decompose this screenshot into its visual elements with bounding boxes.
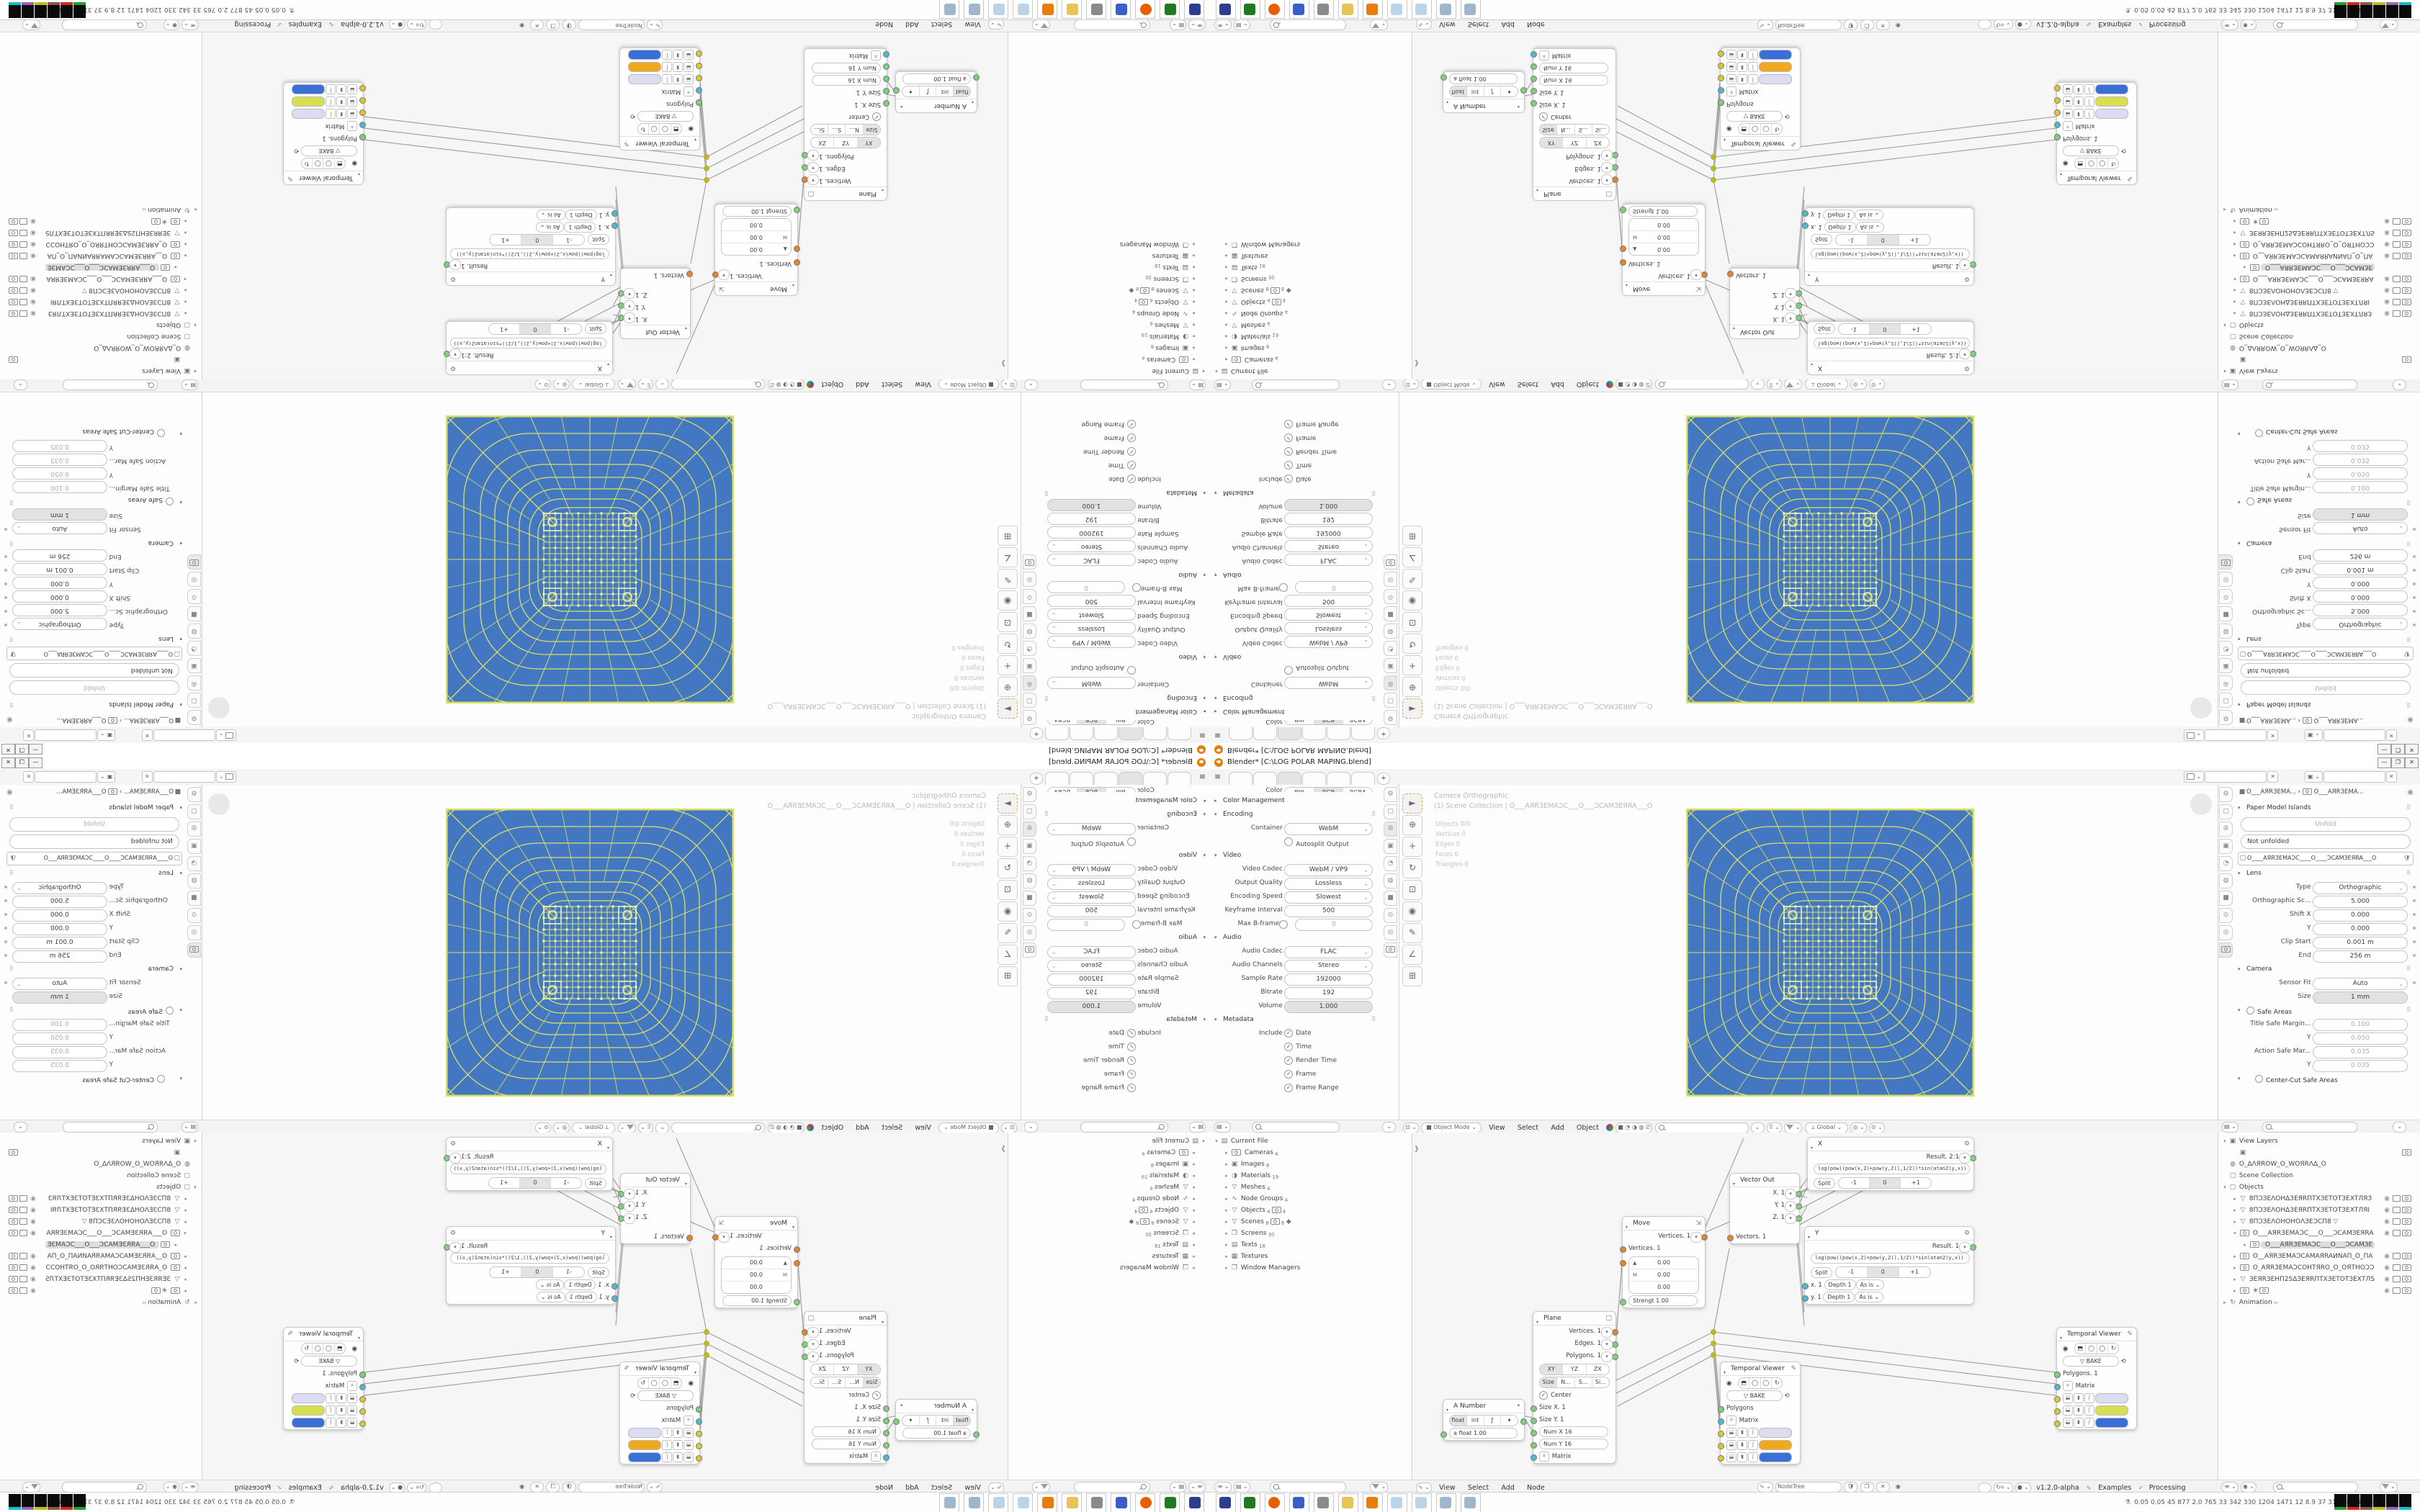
filter-funnel[interactable]: ⌄ (22, 19, 40, 30)
layer-icon-c[interactable]: ʃ (662, 1452, 672, 1462)
socket-orange[interactable] (1620, 1246, 1626, 1253)
scene-selector[interactable]: ⌄ ✕ (2184, 771, 2279, 783)
bake-button[interactable]: ▽ BAKE (301, 145, 357, 156)
layers-row-2[interactable]: ◍ O_ΔΛЯROW_O_WOЯRΛΔ_O (3, 342, 199, 354)
socket-orange[interactable] (1612, 1329, 1618, 1336)
layer-icon-a[interactable]: ⬓ (2063, 1418, 2073, 1428)
socket-cyan[interactable] (696, 1418, 702, 1425)
section-options-icon[interactable]: ⠿ (1371, 811, 1377, 817)
properties-tab-7[interactable]: ⊙ (187, 589, 201, 604)
node-header[interactable]: ▾Y⚙ (447, 271, 615, 285)
output-section-Metadata[interactable]: ▾Metadata⠿ (1037, 1014, 1210, 1027)
layer-icon-c[interactable]: ʃ (662, 1440, 672, 1450)
checkbox-icon[interactable]: ✓ (1284, 1084, 1293, 1092)
taskbar-app-notepad[interactable] (1387, 0, 1407, 19)
expand-arrow-icon[interactable]: ▸ (1190, 1158, 1197, 1170)
socket-orange[interactable] (1727, 271, 1734, 277)
pin-icon[interactable]: ◉ (1892, 20, 1904, 30)
node-plane[interactable]: ▾Plane□Vertices. 1 ▾Edges. 1 ▾Polygons. … (804, 48, 887, 201)
socket-yellow[interactable] (696, 63, 702, 69)
section-checkbox[interactable] (166, 1007, 174, 1014)
field-value[interactable]: FLAC⌄ (1284, 946, 1373, 958)
layer-icon-a[interactable]: ⬓ (347, 1418, 357, 1428)
layer-icon-c[interactable]: ʃ (1748, 75, 1758, 85)
field-value[interactable]: 256 m (2313, 950, 2408, 963)
visibility-toggles[interactable]: ◉ (2384, 250, 2413, 261)
taskbar-app-folder[interactable] (1338, 1493, 1358, 1512)
socket-green[interactable] (893, 1418, 900, 1425)
output-section-Color Management[interactable]: ▸Color Management (1210, 703, 1383, 717)
taskbar-app-blender[interactable] (1363, 1493, 1383, 1512)
properties-tab-1[interactable]: ▢ (1384, 804, 1397, 819)
socket-green[interactable] (1970, 261, 1976, 268)
section-checkbox[interactable] (157, 429, 165, 437)
minimize-button[interactable]: — (29, 744, 42, 755)
filter-funnel[interactable]: ⌄ (1370, 1482, 1388, 1493)
expand-arrow-icon[interactable]: ▾ (1213, 1135, 1220, 1147)
layers-row-13[interactable]: ▸ ✳◉ (2221, 215, 2417, 227)
file-mode-icon[interactable]: ▤ ⌄ (1170, 19, 1186, 30)
properties-tab-2[interactable]: ✇ (1023, 822, 1036, 837)
layers-row-14[interactable]: ▸↻ Animation ⁴² (2221, 204, 2417, 215)
node-header[interactable]: ▾A Number• (896, 1400, 977, 1413)
layer-icon-a[interactable]: ⬓ (684, 50, 694, 60)
navigation-gizmo[interactable] (2190, 697, 2212, 719)
field-value[interactable]: 0.035 (12, 1046, 107, 1058)
layer-icon-b[interactable]: ▮ (336, 1393, 346, 1403)
layer-icon-a[interactable]: ⬓ (1726, 63, 1736, 73)
layer-icon-c[interactable]: ʃ (662, 63, 672, 73)
socket-green[interactable] (1620, 1299, 1626, 1305)
camera-section-Camera[interactable]: ▾Camera⠿ (2, 535, 187, 549)
segment-buttons[interactable]: floatintƒ▾ (902, 86, 971, 97)
file-row-2[interactable]: ▸▣ Images 6 (1213, 1158, 1409, 1170)
tool-transform[interactable]: ◉ (1402, 901, 1422, 922)
node-plane[interactable]: ▾Plane□Vertices. 1 ▾Edges. 1 ▾Polygons. … (1533, 1311, 1616, 1464)
field-value[interactable]: 0.050 (12, 1032, 107, 1045)
properties-tab-8[interactable]: ◎ (2219, 572, 2233, 587)
field-value[interactable]: Slowest⌄ (1047, 608, 1136, 621)
expand-arrow-icon[interactable]: ▸ (181, 1216, 189, 1228)
properties-tab-1[interactable]: ▢ (187, 693, 201, 708)
checkbox-icon[interactable]: ✓ (1127, 1070, 1136, 1079)
layers-row-5[interactable]: ▸▽ 8ΠƆЗЕΛОНΔЗЕЯRΠТXЗЕТОТЗЕXТЛЯЗ◉ (3, 307, 199, 319)
node-header[interactable]: ▾Temporal Viewer✎ (1721, 1362, 1800, 1376)
navigation-gizmo[interactable] (2190, 793, 2212, 815)
socket-cyan[interactable] (1802, 210, 1809, 217)
node-header[interactable]: ▾Vector Out (621, 1174, 690, 1187)
expand-arrow-icon[interactable]: ▸ (1190, 1193, 1197, 1205)
layers-row-2[interactable]: ◍ O_ΔΛЯROW_O_WOЯRΛΔ_O (2221, 342, 2417, 354)
field-value[interactable]: 0.100 (2313, 481, 2408, 493)
filter-dropdown[interactable]: ⌄ (2393, 379, 2406, 390)
expand-arrow-icon[interactable]: ▸ (2231, 1251, 2238, 1262)
layer-icon-c[interactable]: ʃ (662, 50, 672, 60)
layer-icon-a[interactable]: ⬓ (684, 1440, 694, 1450)
socket-green[interactable] (1796, 315, 1802, 321)
workspace-tab-4[interactable] (1302, 727, 1326, 740)
node-editor[interactable]: ▾A Number•floatintƒ▾a float 1.00▾Plane□V… (202, 32, 1008, 379)
layers-row-1[interactable]: ▣ (3, 1147, 199, 1158)
reset-icon[interactable]: ⟲ (294, 147, 301, 154)
tool-transform[interactable]: ◉ (1402, 590, 1422, 611)
record-dropdown[interactable]: ● ⌄ (2015, 19, 2031, 30)
search-input[interactable] (1074, 19, 1150, 30)
expand-arrow-icon[interactable]: ▾ (2221, 319, 2228, 330)
taskbar-app-blender[interactable] (1363, 0, 1383, 19)
layers-row-9[interactable]: ▸ O___AЯRЗEMAƆC___O___ƆCAMЗE (2221, 1239, 2417, 1251)
file-row-7[interactable]: ▸▽ Scenes 88◆ (1213, 284, 1409, 296)
socket-yellow[interactable] (2054, 1408, 2061, 1415)
layer-icon-c[interactable]: ʃ (2084, 85, 2094, 95)
maximize-button[interactable]: ❐ (15, 744, 29, 755)
properties-tab-2[interactable]: ✇ (1384, 822, 1397, 837)
reset-icon[interactable]: ⟲ (630, 1392, 637, 1400)
taskbar-app-card-reader[interactable] (1160, 1493, 1180, 1512)
scene-selector[interactable]: ⌄ ✕ (2184, 729, 2279, 741)
properties-tab-5[interactable]: ◍ (1023, 873, 1036, 888)
socket-yellow[interactable] (359, 1408, 366, 1415)
field-value[interactable]: 0.000 (2313, 909, 2408, 922)
node-header[interactable]: ▾X⚙ (1808, 361, 1973, 374)
expand-arrow-icon[interactable]: ▾ (2231, 273, 2238, 284)
properties-tab-0[interactable]: ⚙ (2219, 710, 2233, 725)
expand-arrow-icon[interactable]: ▸ (2231, 1262, 2238, 1274)
tool-move[interactable]: + (1402, 655, 1422, 675)
properties-tab-2[interactable]: ✇ (187, 675, 201, 690)
expand-arrow-icon[interactable]: ▸ (1190, 296, 1197, 307)
node-vector-out[interactable]: ▾Vector OutX. 1 ▾Y. 1 ▾Z. 1 ▾Vectors. 1 (1729, 268, 1800, 339)
viewport-search-input[interactable] (1655, 379, 1749, 390)
copy-icon[interactable]: ❐ (546, 1482, 560, 1493)
eye-icon[interactable]: ◉ (1726, 125, 1734, 132)
socket-cyan[interactable] (883, 51, 889, 58)
field-value[interactable]: 0 (1047, 919, 1125, 931)
properties-tab-5[interactable]: ◍ (187, 624, 201, 639)
file-row-7[interactable]: ▸▽ Scenes 88◆ (1011, 284, 1207, 296)
tool-add-cube[interactable]: ⊞ (1402, 966, 1422, 986)
workspace-tab-1[interactable] (1229, 727, 1252, 740)
taskbar-app-card-reader[interactable] (1240, 1493, 1260, 1512)
expand-arrow-icon[interactable]: ▸ (2241, 261, 2249, 273)
navigation-gizmo[interactable] (208, 793, 230, 815)
file-mode-icon[interactable]: ▤ ⌄ (1234, 1482, 1250, 1493)
node-a-number[interactable]: ▾A Number•floatintƒ▾a float 1.00 (895, 1399, 977, 1441)
socket-cyan[interactable] (2054, 122, 2061, 128)
animate-dot[interactable] (2413, 981, 2416, 984)
bake-button[interactable]: ▽ BAKE (301, 1356, 357, 1367)
camera-section-Paper Model Islands[interactable]: ▾Paper Model Islands⠿ (2, 696, 187, 710)
layer-icon-b[interactable]: ▮ (2074, 1393, 2084, 1403)
taskbar-app-firefox[interactable] (1265, 0, 1285, 19)
expand-arrow-icon[interactable]: ▸ (181, 1274, 189, 1285)
socket-mode-button[interactable]: ▾ (718, 269, 730, 280)
view-layer-selector[interactable]: ▣ ⌄ ✕ (22, 771, 115, 783)
file-mode-icon[interactable]: ▤ ⌄ (1234, 19, 1250, 30)
taskbar-app-installer-64[interactable] (1111, 1493, 1131, 1512)
depth-pill[interactable]: Depth 1 (1824, 1279, 1856, 1290)
node-header[interactable]: ▾Plane□ (1533, 186, 1615, 200)
field-value[interactable]: 192 (1284, 987, 1373, 999)
color-swatch[interactable] (292, 85, 325, 95)
properties-tab-9[interactable] (1023, 554, 1036, 570)
socket-green[interactable] (1620, 207, 1626, 213)
field-value[interactable]: WebM / VP9⌄ (1284, 636, 1373, 648)
animate-dot[interactable] (4, 528, 7, 531)
expand-arrow-icon[interactable]: ▸ (1190, 330, 1197, 342)
socket-green[interactable] (794, 1299, 800, 1305)
socket-mode-button[interactable]: ▾ (449, 1153, 461, 1164)
value-pill[interactable]: a float 1.00 (902, 1428, 971, 1439)
output-section-Color Management[interactable]: ▸Color Management (1037, 795, 1210, 809)
layers-row-8[interactable]: ▾ O___AЯRЗEMAƆC___O___ƆCAMЗEЯRA◉ (3, 1228, 199, 1239)
output-section-Color Management[interactable]: ▸Color Management (1210, 795, 1383, 809)
layer-icon-a[interactable]: ⬓ (684, 75, 694, 85)
properties-tab-2[interactable]: ✇ (1023, 675, 1036, 690)
socket-cyan[interactable] (611, 1295, 618, 1302)
socket-green[interactable] (1531, 1430, 1537, 1436)
node-a-number[interactable]: ▾A Number•floatintƒ▾a float 1.00 (1443, 1399, 1525, 1441)
maximize-button[interactable]: ❐ (2391, 757, 2405, 768)
field-value[interactable]: 192 (1047, 987, 1136, 999)
camera-section-Camera[interactable]: ▾Camera⠿ (2233, 535, 2418, 549)
layers-row-8[interactable]: ▾ O___AЯRЗEMAƆC___O___ƆCAMЗEЯRA◉ (2221, 273, 2417, 284)
expand-arrow-icon[interactable]: ▸ (1223, 296, 1230, 307)
field-value[interactable]: 500 (1284, 595, 1373, 607)
workspace-tab-2[interactable] (1253, 772, 1277, 785)
tool-select-box[interactable]: ► (1402, 793, 1422, 814)
visibility-toggles[interactable]: ◉ (2384, 215, 2413, 227)
copy-icon[interactable]: ❐ (1860, 19, 1874, 30)
viewer-mode-segment[interactable]: ⬒◯◯↻ (637, 123, 682, 135)
layer-icon-a[interactable]: ⬓ (684, 63, 694, 73)
socket-cyan[interactable] (1718, 87, 1724, 94)
checkbox-icon[interactable]: ✓ (1127, 1056, 1136, 1065)
node-a-number[interactable]: ▾A Number•floatintƒ▾a float 1.00 (895, 71, 977, 113)
orientation-dropdown[interactable]: ⟂ Global ⌄ (572, 379, 616, 390)
output-section-Color Management[interactable]: ▸Color Management (1037, 703, 1210, 717)
viewer-mode-segment[interactable]: ⬒◯◯↻ (637, 1377, 682, 1389)
field-checkbox[interactable] (1279, 583, 1288, 592)
field-value[interactable]: WebM / VP9⌄ (1047, 636, 1136, 648)
taskbar-app-folder[interactable] (1062, 0, 1082, 19)
tool-transform[interactable]: ◉ (998, 901, 1018, 922)
socket-yellow[interactable] (696, 1455, 702, 1462)
layers-row-13[interactable]: ▸ ✳◉ (2221, 1285, 2417, 1297)
layer-icon-c[interactable]: ʃ (326, 1393, 336, 1403)
layers-row-14[interactable]: ▸↻ Animation ⁴² (2221, 1297, 2417, 1308)
expand-arrow-icon[interactable]: ▾ (1213, 365, 1220, 377)
eye-icon[interactable]: ◉ (686, 125, 694, 132)
socket-yellow[interactable] (359, 85, 366, 91)
camera-button-Unfold[interactable]: Unfold (2241, 817, 2411, 832)
layer-icon-a[interactable]: ⬓ (347, 97, 357, 107)
layer-icon-c[interactable]: ʃ (1748, 1428, 1758, 1438)
overlay-dropdown[interactable]: ⌄ (1751, 379, 1765, 390)
depth-pill[interactable]: Depth 1 (564, 1279, 596, 1290)
file-row-6[interactable]: ▸▽ Objects 44 (1011, 296, 1207, 307)
socket-mode-button[interactable]: ▾ (624, 1189, 635, 1200)
tool-add-cube[interactable]: ⊞ (998, 526, 1018, 546)
section-options-icon[interactable]: ⠿ (2406, 804, 2412, 811)
node-header[interactable]: ▾Plane□ (805, 1312, 887, 1326)
file-row-9[interactable]: ▸▤ Texts 18 (1011, 261, 1207, 273)
taskbar-app-blender[interactable] (1037, 0, 1057, 19)
field-value[interactable]: 0.001 m (2313, 563, 2408, 575)
animate-dot[interactable] (2413, 555, 2416, 558)
socket-green[interactable] (696, 1406, 702, 1413)
layers-row-4[interactable]: ▾▢ Objects (2221, 1182, 2417, 1193)
copy-icon[interactable]: ❐ (546, 19, 560, 30)
layer-icon-b[interactable]: ▮ (1737, 50, 1747, 60)
socket-orange[interactable] (1620, 246, 1626, 252)
editor-type-icon[interactable]: ▤ ⌄ (1189, 1122, 1206, 1133)
taskbar-app-notepad[interactable] (1013, 0, 1033, 19)
editor-type-icon[interactable]: ▤ ⌄ (181, 1122, 198, 1133)
camera-section-Lens[interactable]: ▾Lens⠿ (2, 868, 187, 881)
field-value[interactable]: 5.000 (12, 604, 107, 616)
tree-icon[interactable]: ∿ ⌄ (647, 19, 663, 30)
layers-row-10[interactable]: ▸ O__AЯRЗEMAƆCAMAЯRAИNAП_O_ПA◉ (2221, 250, 2417, 261)
viewport-3d[interactable]: ►⊕+↻⊡◉✎∠⊞ Camera Orthographic (1) Scene … (1399, 785, 2218, 1120)
socket-green[interactable] (1970, 1155, 1976, 1161)
section-options-icon[interactable]: ⠿ (8, 701, 14, 708)
layers-row-9[interactable]: ▸ O___AЯRЗEMAƆC___O___ƆCAMЗE (3, 261, 199, 273)
properties-tab-4[interactable]: ◔ (187, 641, 201, 656)
node-header[interactable]: ▾Move⇲ (1623, 1217, 1705, 1230)
overlay-dropdown[interactable]: ⌄ (655, 1122, 669, 1133)
properties-tab-2[interactable]: ✇ (187, 822, 201, 837)
menu-add[interactable]: Add (856, 378, 869, 390)
search-input[interactable] (1080, 1122, 1168, 1133)
taskbar-app-speaker[interactable] (1314, 1493, 1334, 1512)
socket-mode-button[interactable]: ▾ (1785, 1189, 1796, 1200)
socket-cyan[interactable] (2054, 1384, 2061, 1390)
expand-arrow-icon[interactable]: ▸ (2231, 1285, 2238, 1297)
tool-select-box[interactable]: ► (1402, 698, 1422, 719)
field-value[interactable]: 192000 (1284, 526, 1373, 539)
properties-tab-1[interactable]: ▢ (1023, 693, 1036, 708)
socket-mode-button[interactable]: ▾ (1959, 1153, 1971, 1164)
taskbar-app-folder[interactable] (1062, 1493, 1082, 1512)
expand-arrow-icon[interactable]: ▸ (1190, 1251, 1197, 1262)
vector-component-0[interactable]: 0.00▲ (1629, 243, 1698, 255)
section-checkbox[interactable] (2246, 1007, 2254, 1014)
socket-yellow[interactable] (2054, 1421, 2061, 1427)
expand-arrow-icon[interactable]: ▸ (1190, 307, 1197, 319)
expand-arrow-icon[interactable]: ▸ (1223, 250, 1230, 261)
checkbox-icon[interactable]: ✓ (1284, 420, 1293, 428)
checkbox-icon[interactable]: ✓ (1284, 1070, 1293, 1079)
socket-cyan[interactable] (1531, 51, 1537, 58)
orientation-dropdown[interactable]: ⟂ Global ⌄ (1805, 379, 1849, 390)
field-value[interactable]: 5.000 (2313, 604, 2408, 616)
visibility-toggles[interactable]: ◉ (7, 1274, 36, 1285)
fake-user-shield-icon[interactable]: 🛡 (1844, 1482, 1857, 1493)
taskbar-app-card-reader[interactable] (1160, 0, 1180, 19)
field-value[interactable]: Auto⌄ (2313, 978, 2408, 990)
properties-tab-8[interactable]: ◎ (1384, 925, 1397, 940)
field-value[interactable]: WebM / VP9⌄ (1047, 864, 1136, 876)
expand-arrow-icon[interactable]: ▸ (181, 215, 189, 227)
add-workspace-button[interactable]: + (1377, 773, 1390, 785)
properties-tab-5[interactable]: ◍ (1023, 624, 1036, 639)
layers-row-10[interactable]: ▸ O__AЯRЗEMAƆCAMAЯRAИNAП_O_ПA◉ (3, 1251, 199, 1262)
field-value[interactable]: WebM⌄ (1047, 823, 1136, 835)
split-button[interactable]: Split (1811, 235, 1832, 246)
animate-dot[interactable] (4, 596, 7, 599)
taskbar-app-folder[interactable] (1338, 0, 1358, 19)
properties-tab-3[interactable]: ▣ (1384, 658, 1397, 673)
socket-green[interactable] (1531, 63, 1537, 70)
socket-green[interactable] (973, 74, 980, 81)
formula-input[interactable]: log(pow((pow(x,2)+pow(y,2)),1/2))*sin(at… (450, 1253, 609, 1264)
taskbar-app-monitor[interactable] (1184, 0, 1204, 19)
socket-green[interactable] (1531, 1418, 1537, 1424)
expand-arrow-icon[interactable]: ▸ (1190, 354, 1197, 365)
filter-dropdown[interactable]: ⌄ (1024, 1122, 1038, 1133)
socket-yellow[interactable] (359, 97, 366, 104)
mode-dropdown[interactable]: ■ Object Mode ⌄ (1421, 379, 1482, 390)
node-x-formula[interactable]: ▾X⚙Result. 2:1 ▾log(pow((pow(x,2)+pow(y,… (446, 321, 613, 375)
search-input[interactable] (62, 19, 147, 30)
field-value[interactable]: 0.000 (2313, 923, 2408, 935)
visibility-toggles[interactable] (2401, 354, 2413, 365)
properties-tab-3[interactable]: ▣ (1384, 839, 1397, 854)
node-temporal-viewer-2[interactable]: ▾Temporal Viewer✎◉ ⬒◯◯↻▽ BAKE ⟲Polygons.… (283, 1327, 364, 1430)
tool-scale[interactable]: ⊡ (1402, 880, 1422, 900)
formula-input[interactable]: log(pow((pow(x,2)+pow(y,2)),1/2))*sin(at… (1811, 248, 1970, 259)
properties-tab-3[interactable]: ▣ (1023, 658, 1036, 673)
field-value[interactable]: Slowest⌄ (1284, 891, 1373, 904)
view-layer-selector[interactable]: ▣ ⌄ ✕ (2305, 729, 2398, 741)
layer-icon-a[interactable]: ⬓ (347, 85, 357, 95)
field-value[interactable]: 0 (1047, 581, 1125, 593)
expand-arrow-icon[interactable]: ▾ (1200, 1135, 1207, 1147)
properties-tab-6[interactable]: ■ (1023, 891, 1036, 906)
node-header[interactable]: ▾Temporal Viewer✎ (1721, 136, 1800, 150)
expand-arrow-icon[interactable]: ▸ (2241, 1239, 2249, 1251)
node-header[interactable]: ▾A Number• (1443, 1400, 1524, 1413)
field-value[interactable]: 500 (1284, 905, 1373, 917)
output-section-Video[interactable]: ▾Video (1037, 850, 1210, 863)
field-value[interactable]: WebM⌄ (1047, 677, 1136, 689)
expand-arrow-icon[interactable]: ▸ (181, 227, 189, 238)
display-mode-dropdown[interactable]: ⦙≡ ⌄ (181, 1482, 199, 1493)
node-header[interactable]: ▾A Number• (1443, 99, 1524, 112)
file-row-10[interactable]: ▸▦ Textures (1213, 250, 1409, 261)
expand-arrow-icon[interactable]: ▸ (1190, 273, 1197, 284)
properties-tab-7[interactable]: ⊙ (1384, 908, 1397, 923)
tool-measure[interactable]: ∠ (998, 547, 1018, 567)
field-value[interactable]: 0 (1295, 919, 1373, 931)
formula-input[interactable]: log(pow((pow(x,2)+pow(y,2)),1/2))*sin(at… (450, 338, 606, 348)
expand-arrow-icon[interactable]: ▸ (1223, 330, 1230, 342)
expand-arrow-icon[interactable]: ▸ (171, 1239, 179, 1251)
search-input[interactable] (2273, 1482, 2358, 1493)
node-y-formula[interactable]: ▾Y⚙Result. 1 ▾log(pow((pow(x,2)+pow(y,2)… (1804, 1226, 1974, 1305)
properties-tab-0[interactable]: ⚙ (1023, 787, 1036, 802)
properties-tab-6[interactable]: ■ (187, 606, 201, 621)
camera-section-Center-Cut Safe Areas[interactable]: ▾Center-Cut Safe Areas (2233, 426, 2418, 439)
taskbar-app-calculator[interactable] (964, 0, 984, 19)
visibility-toggles[interactable]: ◉ (7, 284, 36, 296)
vector-component-2[interactable]: 0.00 (722, 1282, 791, 1293)
socket-green[interactable] (1970, 1244, 1976, 1251)
field-value[interactable]: 192 (1047, 513, 1136, 525)
properties-tab-9[interactable] (1384, 554, 1397, 570)
viewer-mode-segment[interactable]: ⬒◯◯↻ (301, 158, 346, 169)
